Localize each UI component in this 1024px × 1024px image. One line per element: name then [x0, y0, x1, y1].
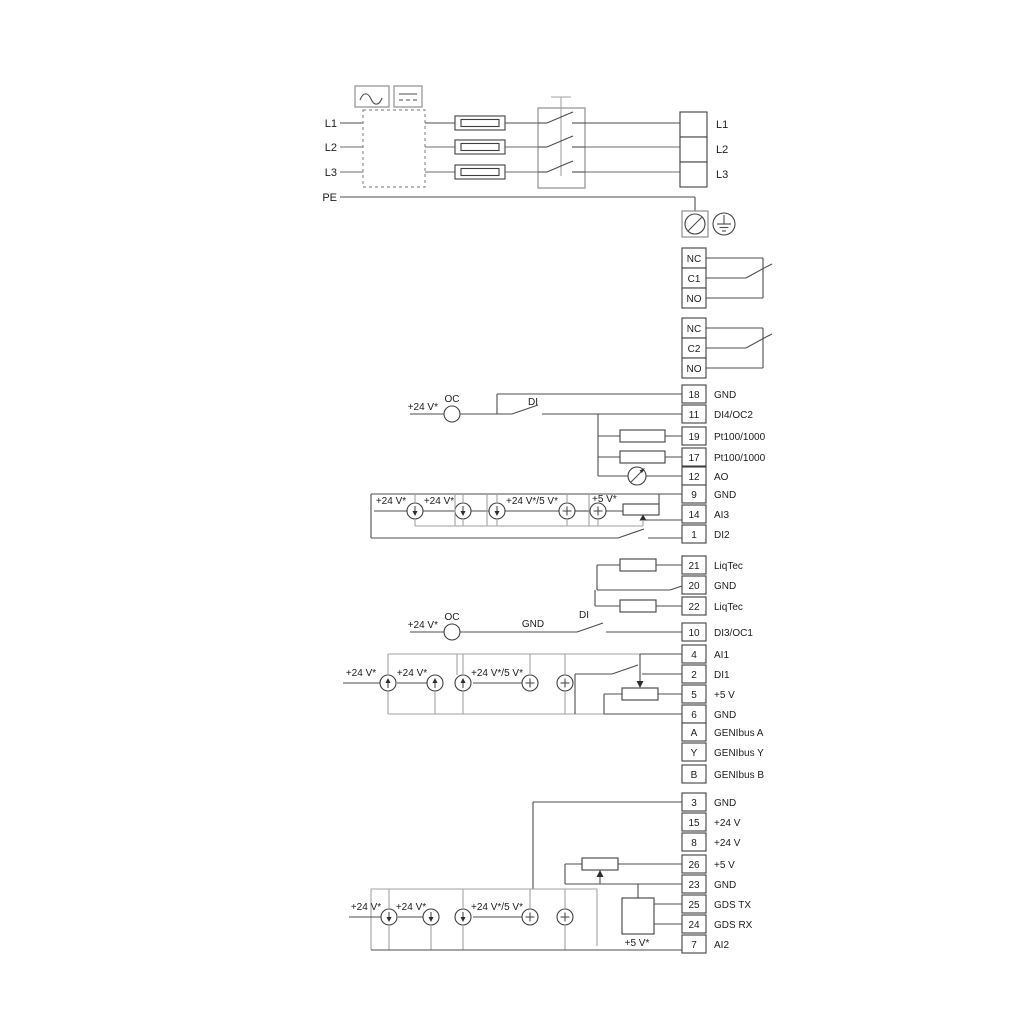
- terminal-number: 2: [691, 670, 697, 681]
- terminal-label: AI3: [714, 510, 729, 521]
- current-transmitter-icon: [455, 503, 471, 519]
- liqtec-sensor-icon: [620, 559, 656, 571]
- terminal-number: 25: [688, 900, 700, 911]
- terminal-number: 19: [688, 432, 700, 443]
- voltage-source-icon: [590, 503, 606, 519]
- di-label: DI: [579, 610, 589, 621]
- terminal-label: LiqTec: [714, 602, 743, 613]
- relay1-no: NO: [687, 294, 702, 305]
- current-transmitter-icon: [407, 503, 423, 519]
- terminal-label: +24 V: [714, 818, 741, 829]
- relay2-c2: C2: [688, 344, 701, 355]
- terminal-label: DI1: [714, 670, 730, 681]
- potentiometer-icon: [622, 688, 658, 700]
- terminal-number: 21: [688, 561, 700, 572]
- wiper-arrow-icon: [637, 681, 644, 688]
- terminal-number: Y: [691, 748, 698, 759]
- voltage-source-icon: [557, 675, 573, 691]
- terminal-number: 6: [691, 710, 697, 721]
- terminal-number: 3: [691, 798, 697, 809]
- pt100-sensor-icon: [620, 451, 665, 463]
- terminal-number: 17: [688, 453, 700, 464]
- terminal-number: A: [691, 728, 698, 739]
- main-switch-icon: [538, 97, 585, 188]
- terminal-label: DI3/OC1: [714, 628, 753, 639]
- terminal-block-io1: 18GND 11DI4/OC2 19Pt100/1000 17Pt100/100…: [682, 385, 766, 543]
- terminal-number: 15: [688, 818, 700, 829]
- voltage-source-icon: [557, 909, 573, 925]
- gds-sensor-box: [622, 898, 654, 934]
- potentiometer-icon: [582, 858, 618, 870]
- terminal-label: GND: [714, 490, 736, 501]
- wiper-arrow-icon: [597, 870, 604, 877]
- current-transmitter-icon: [380, 675, 396, 691]
- terminal-block-io3: 3GND 15+24 V 8+24 V 26+5 V 23GND 25GDS T…: [682, 793, 753, 953]
- v24-label: +24 V*: [424, 496, 454, 507]
- terminal-label: DI4/OC2: [714, 410, 753, 421]
- voltage-source-icon: [522, 909, 538, 925]
- fuse-l1-icon: [455, 116, 505, 130]
- v24-label: +24 V*: [408, 402, 438, 413]
- terminal-label: GDS TX: [714, 900, 751, 911]
- terminal-number: 18: [688, 390, 700, 401]
- relay1-c1: C1: [688, 274, 701, 285]
- current-transmitter-icon: [423, 909, 439, 925]
- terminal-label: Pt100/1000: [714, 432, 766, 443]
- v24-v5-label: +24 V*/5 V*: [506, 496, 558, 507]
- voltage-source-icon: [559, 503, 575, 519]
- current-transmitter-icon: [455, 909, 471, 925]
- liqtec-sensor-circuit: [595, 559, 682, 612]
- terminal-number: 12: [688, 472, 700, 483]
- analog-output-meter-icon: [628, 467, 646, 485]
- terminal-label: GENIbus B: [714, 770, 764, 781]
- mains-label-l2: L2: [716, 144, 728, 156]
- current-transmitter-icon: [427, 675, 443, 691]
- gnd-label: GND: [522, 619, 544, 630]
- terminal-number: 5: [691, 690, 697, 701]
- wiring-diagram-page: L1 L2 L3 PE: [0, 0, 1024, 1024]
- terminal-label: GND: [714, 880, 736, 891]
- phase-label-l2: L2: [325, 142, 337, 154]
- current-transmitter-icon: [489, 503, 505, 519]
- mains-label-l3: L3: [716, 169, 728, 181]
- phase-label-pe: PE: [322, 192, 337, 204]
- terminal-number: 20: [688, 581, 700, 592]
- oc-label: OC: [445, 394, 460, 405]
- terminal-number: 1: [691, 530, 697, 541]
- v24-v5-label: +24 V*/5 V*: [471, 668, 523, 679]
- pt100-sensor-icon: [620, 430, 665, 442]
- di1-switch-icon: [612, 665, 638, 674]
- v24-label: +24 V*: [396, 902, 426, 913]
- di3-switch-icon: [577, 623, 603, 632]
- relay2-contact-icon: [706, 328, 772, 368]
- terminal-label: LiqTec: [714, 561, 743, 572]
- filter-box: [363, 110, 425, 187]
- terminal-number: 22: [688, 602, 700, 613]
- current-transmitter-icon: [381, 909, 397, 925]
- terminal-number: 4: [691, 650, 697, 661]
- mains-terminal-block: [680, 112, 707, 187]
- terminal-number: 23: [688, 880, 700, 891]
- relay2-block: NC C2 NO: [682, 318, 772, 378]
- v24-label: +24 V*: [346, 668, 376, 679]
- terminal-label: AO: [714, 472, 729, 483]
- terminal-number: 14: [688, 510, 700, 521]
- phase-label-l1: L1: [325, 118, 337, 130]
- potentiometer-icon: [623, 504, 659, 515]
- terminal-number: 24: [688, 920, 700, 931]
- terminal-number: 9: [691, 490, 697, 501]
- relay1-nc: NC: [687, 254, 701, 265]
- ai2-gds-circuit: +24 V* +24 V* +24 V*/5 V* +5 V*: [349, 802, 682, 950]
- fuse-l3-icon: [455, 165, 505, 179]
- oc-label: OC: [445, 612, 460, 623]
- terminal-label: GND: [714, 390, 736, 401]
- terminal-label: Pt100/1000: [714, 453, 766, 464]
- di3-oc1-circuit: +24 V* OC GND DI: [408, 610, 682, 640]
- wiring-diagram: L1 L2 L3 PE: [0, 0, 1024, 1024]
- terminal-label: GENIbus Y: [714, 748, 764, 759]
- relay2-nc: NC: [687, 324, 701, 335]
- ai1-di1-circuit: +24 V* +24 V* +24 V*/5 V*: [343, 654, 682, 714]
- terminal-block-liqtec: 21LiqTec 20GND 22LiqTec: [682, 556, 743, 615]
- v24-label: +24 V*: [408, 620, 438, 631]
- terminal-label: AI2: [714, 940, 729, 951]
- relay2-no: NO: [687, 364, 702, 375]
- open-collector-icon: [444, 624, 460, 640]
- voltage-source-icon: [522, 675, 538, 691]
- v24-label: +24 V*: [376, 496, 406, 507]
- ground-icon: [713, 213, 735, 235]
- phase-label-l3: L3: [325, 167, 337, 179]
- open-collector-icon: [444, 406, 460, 422]
- di2-switch-icon: [618, 529, 644, 538]
- terminal-label: GND: [714, 581, 736, 592]
- terminal-label: +5 V: [714, 690, 735, 701]
- ai3-di2-circuit: +24 V* +24 V* +24 V*/5 V* +5 V*: [371, 494, 682, 538]
- terminal-number: 11: [689, 410, 700, 421]
- terminal-label: GENIbus A: [714, 728, 764, 739]
- terminal-number: 8: [691, 838, 697, 849]
- v24-v5-label: +24 V*/5 V*: [471, 902, 523, 913]
- terminal-label: AI1: [714, 650, 729, 661]
- liqtec-sensor-icon: [620, 600, 656, 612]
- terminal-label: +5 V: [714, 860, 735, 871]
- fuse-l2-icon: [455, 140, 505, 154]
- ac-icon-box: [355, 86, 389, 107]
- terminal-number: 7: [691, 940, 697, 951]
- relay1-block: NC C1 NO: [682, 248, 772, 308]
- di4-switch-icon: [512, 405, 538, 414]
- dc-icon-box: [394, 86, 422, 107]
- v5-label: +5 V*: [625, 938, 650, 949]
- terminal-label: GND: [714, 798, 736, 809]
- pt100-ao-circuit: [598, 430, 682, 485]
- terminal-number: 10: [688, 628, 700, 639]
- terminal-block-io2: 10DI3/OC1 4AI1 2DI1 5+5 V 6GND AGENIbus …: [682, 623, 764, 783]
- terminal-number: 26: [688, 860, 700, 871]
- v24-label: +24 V*: [397, 668, 427, 679]
- terminal-label: GDS RX: [714, 920, 753, 931]
- terminal-number: B: [691, 770, 698, 781]
- relay1-contact-icon: [706, 258, 772, 298]
- current-transmitter-icon: [455, 675, 471, 691]
- terminal-label: +24 V: [714, 838, 741, 849]
- v24-label: +24 V*: [351, 902, 381, 913]
- mains-label-l1: L1: [716, 119, 728, 131]
- terminal-label: DI2: [714, 530, 730, 541]
- terminal-label: GND: [714, 710, 736, 721]
- pe-screw-terminal-icon: [682, 211, 708, 237]
- power-input-section: L1 L2 L3 PE: [322, 86, 735, 237]
